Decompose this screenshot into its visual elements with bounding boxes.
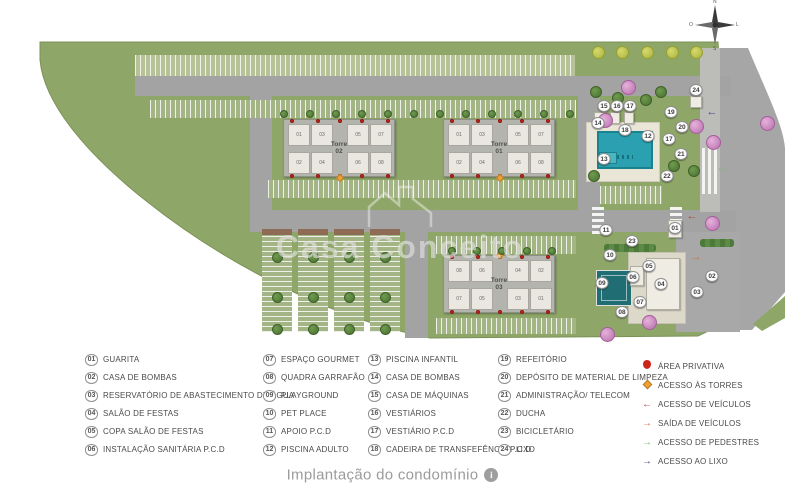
legend-item: 16VESTIÁRIOS xyxy=(368,407,436,420)
tower-unit: 05 xyxy=(471,288,493,310)
legend-label: SALÃO DE FESTAS xyxy=(103,409,179,418)
legend-label: QUADRA GARRAFÃO xyxy=(281,373,365,382)
map-marker: 24 xyxy=(690,84,703,96)
legend-label: DUCHA xyxy=(516,409,545,418)
private-area-dot xyxy=(520,255,524,259)
legend-item: 17VESTIÁRIO P.C.D xyxy=(368,425,454,438)
green-tree-icon xyxy=(308,324,319,335)
pink-flowering-tree-icon xyxy=(689,119,704,134)
legend-label: VESTIÁRIOS xyxy=(386,409,436,418)
tower-unit: 02 xyxy=(288,152,310,174)
legend-symbol-label: ÁREA PRIVATIVA xyxy=(658,362,724,371)
private-area-dot xyxy=(546,310,550,314)
legend-symbol-label: ACESSO DE PEDESTRES xyxy=(658,438,759,447)
tower-building: 0103050702040608Torre 02 xyxy=(283,119,395,177)
legend-label: INSTALAÇÃO SANITÁRIA P.C.D xyxy=(103,445,225,454)
green-tree-icon xyxy=(308,252,319,263)
legend-item: 04SALÃO DE FESTAS xyxy=(85,407,179,420)
legend-label: ESPAÇO GOURMET xyxy=(281,355,360,364)
private-area-dot xyxy=(498,119,502,123)
private-area-dot xyxy=(546,174,550,178)
compass-rose: N S L O xyxy=(692,2,738,48)
map-marker: 18 xyxy=(619,124,632,136)
green-tree-icon xyxy=(488,110,496,118)
vehicle-exit-icon: → xyxy=(640,418,654,430)
unit-number: 06 xyxy=(348,153,368,173)
legend-number-badge: 17 xyxy=(368,426,381,438)
legend-number-badge: 10 xyxy=(263,408,276,420)
unit-number: 02 xyxy=(289,153,309,173)
legend-number-badge: 08 xyxy=(263,372,276,384)
map-marker: 17 xyxy=(663,133,676,145)
legend-symbol-item: →ACESSO DE PEDESTRES xyxy=(640,436,759,449)
legend-item: 08QUADRA GARRAFÃO xyxy=(263,371,365,384)
tower-unit: 08 xyxy=(530,152,552,174)
tower-unit: 02 xyxy=(448,152,470,174)
map-marker: 10 xyxy=(604,249,617,261)
hedge-row xyxy=(700,239,734,247)
pink-flowering-tree-icon xyxy=(760,116,775,131)
green-tree-icon xyxy=(523,247,531,255)
private-area-dot xyxy=(476,255,480,259)
info-icon[interactable]: i xyxy=(484,468,498,482)
private-area-dot xyxy=(520,174,524,178)
tower-access-icon xyxy=(640,380,654,392)
legend-label: REFEITÓRIO xyxy=(516,355,567,364)
legend-number-badge: 24 xyxy=(498,444,511,456)
map-marker: 14 xyxy=(592,117,605,129)
green-tree-icon xyxy=(436,110,444,118)
legend-symbol-label: ACESSO DE VEÍCULOS xyxy=(658,400,751,409)
site-plan-page: 0103050702040608Torre 020103050702040608… xyxy=(0,0,785,491)
tower-unit: 06 xyxy=(507,152,529,174)
legend-item: 14CASA DE BOMBAS xyxy=(368,371,460,384)
legend-item: 23BICICLETÁRIO xyxy=(498,425,574,438)
map-marker: 04 xyxy=(655,278,668,290)
legend-number-badge: 16 xyxy=(368,408,381,420)
map-marker: 20 xyxy=(676,121,689,133)
legend-symbol-label: ACESSO AO LIXO xyxy=(658,457,728,466)
legend-number-badge: 19 xyxy=(498,354,511,366)
parking-row xyxy=(436,318,576,334)
parking-row xyxy=(262,234,292,332)
map-marker: 07 xyxy=(634,296,647,308)
private-area-dot xyxy=(338,119,342,123)
green-tree-icon xyxy=(344,324,355,335)
legend-number-badge: 13 xyxy=(368,354,381,366)
legend-number-badge: 14 xyxy=(368,372,381,384)
legend-item: 02CASA DE BOMBAS xyxy=(85,371,177,384)
map-marker: 22 xyxy=(661,170,674,182)
vehicle-access-icon: ← xyxy=(640,399,654,411)
tower-name-label: Torre 03 xyxy=(444,277,554,291)
map-marker: 11 xyxy=(600,224,613,236)
legend-label: COPA SALÃO DE FESTAS xyxy=(103,427,204,436)
tower-unit: 06 xyxy=(347,152,369,174)
private-area-dot xyxy=(546,255,550,259)
green-shrub-icon xyxy=(588,170,600,182)
unit-number: 08 xyxy=(371,153,391,173)
legend-label: CASA DE BOMBAS xyxy=(103,373,177,382)
legend-number-badge: 05 xyxy=(85,426,98,438)
legend-number-badge: 01 xyxy=(85,354,98,366)
carport-roof xyxy=(262,229,292,235)
unit-number: 07 xyxy=(449,289,469,309)
legend-number-badge: 23 xyxy=(498,426,511,438)
parking-row xyxy=(268,180,576,198)
road-center-vertical xyxy=(405,232,428,338)
private-area-dot xyxy=(386,174,390,178)
private-area-dot xyxy=(520,310,524,314)
green-tree-icon xyxy=(272,252,283,263)
green-tree-icon xyxy=(473,247,481,255)
private-area-dot xyxy=(520,119,524,123)
green-tree-icon xyxy=(384,110,392,118)
legend-item: 05COPA SALÃO DE FESTAS xyxy=(85,425,204,438)
pink-flowering-tree-icon xyxy=(705,216,720,231)
legend: 01GUARITA02CASA DE BOMBAS03RESERVATÓRIO … xyxy=(0,348,785,470)
parking-row xyxy=(334,234,364,332)
legend-label: PISCINA INFANTIL xyxy=(386,355,458,364)
green-shrub-icon xyxy=(640,94,652,106)
caption-bar: Implantação do condomínioi xyxy=(0,466,785,484)
green-tree-icon xyxy=(514,110,522,118)
map-marker: 09 xyxy=(596,277,609,289)
legend-item: 13PISCINA INFANTIL xyxy=(368,353,458,366)
legend-label: CASA DE BOMBAS xyxy=(386,373,460,382)
private-area-icon xyxy=(640,360,654,373)
unit-number: 02 xyxy=(449,153,469,173)
tower-unit: 08 xyxy=(370,152,392,174)
map-marker: 05 xyxy=(643,260,656,272)
unit-number: 06 xyxy=(508,153,528,173)
pink-flowering-tree-icon xyxy=(600,327,615,342)
private-area-dot xyxy=(476,119,480,123)
legend-label: LIXO xyxy=(516,445,535,454)
legend-item: 15CASA DE MÁQUINAS xyxy=(368,389,469,402)
legend-item: 21ADMINISTRAÇÃO/ TELECOM xyxy=(498,389,630,402)
tower-name-label: Torre 01 xyxy=(444,141,554,155)
private-area-dot xyxy=(546,119,550,123)
private-area-dot xyxy=(450,255,454,259)
private-area-dot xyxy=(450,119,454,123)
legend-number-badge: 06 xyxy=(85,444,98,456)
green-tree-icon xyxy=(540,110,548,118)
yellow-tree-icon xyxy=(616,46,629,59)
private-area-dot xyxy=(450,174,454,178)
legend-item: 07ESPAÇO GOURMET xyxy=(263,353,360,366)
green-tree-icon xyxy=(380,292,391,303)
tower-unit: 04 xyxy=(471,152,493,174)
yellow-tree-icon xyxy=(641,46,654,59)
unit-number: 08 xyxy=(531,153,551,173)
green-tree-icon xyxy=(280,110,288,118)
changing-rooms-building xyxy=(624,112,634,124)
legend-label: APOIO P.C.D xyxy=(281,427,331,436)
trash-building xyxy=(690,96,702,108)
legend-item: 11APOIO P.C.D xyxy=(263,425,331,438)
map-marker: 17 xyxy=(624,100,637,112)
legend-number-badge: 18 xyxy=(368,444,381,456)
private-area-dot xyxy=(450,310,454,314)
green-tree-icon xyxy=(306,110,314,118)
parking-row xyxy=(370,234,400,332)
compass-south-label: S xyxy=(713,46,716,52)
legend-number-badge: 04 xyxy=(85,408,98,420)
unit-number: 04 xyxy=(312,153,332,173)
private-area-dot xyxy=(316,174,320,178)
parking-row xyxy=(298,234,328,332)
green-tree-icon xyxy=(380,252,391,263)
green-tree-icon xyxy=(332,110,340,118)
trash-access-arrow: ← xyxy=(707,107,718,117)
tower-unit: 07 xyxy=(448,288,470,310)
green-tree-icon xyxy=(548,247,556,255)
green-shrub-icon xyxy=(688,165,700,177)
compass-east-label: L xyxy=(736,22,739,28)
carport-roof xyxy=(370,229,400,235)
legend-item: 24LIXO xyxy=(498,443,535,456)
private-area-dot xyxy=(360,174,364,178)
carport-roof xyxy=(334,229,364,235)
map-marker: 13 xyxy=(598,153,611,165)
condominium-master-plan[interactable]: 0103050702040608Torre 020103050702040608… xyxy=(0,0,785,345)
legend-number-badge: 02 xyxy=(85,372,98,384)
green-tree-icon xyxy=(358,110,366,118)
legend-symbol-item: ACESSO ÀS TORRES xyxy=(640,379,743,392)
legend-number-badge: 07 xyxy=(263,354,276,366)
caption-title: Implantação do condomínio xyxy=(287,466,479,483)
parking-row xyxy=(600,186,662,204)
legend-symbol-label: SAÍDA DE VEÍCULOS xyxy=(658,419,741,428)
pink-flowering-tree-icon xyxy=(621,80,636,95)
map-marker: 19 xyxy=(665,106,678,118)
map-marker: 03 xyxy=(691,286,704,298)
tower-unit: 01 xyxy=(530,288,552,310)
parking-row xyxy=(135,55,575,76)
map-marker: 08 xyxy=(616,306,629,318)
map-marker: 21 xyxy=(675,148,688,160)
tower-building: 0806040207050301Torre 03 xyxy=(443,255,555,313)
legend-item: 12PISCINA ADULTO xyxy=(263,443,349,456)
legend-number-badge: 20 xyxy=(498,372,511,384)
unit-number: 01 xyxy=(531,289,551,309)
pink-flowering-tree-icon xyxy=(642,315,657,330)
legend-item: 10PET PLACE xyxy=(263,407,327,420)
legend-item: 01GUARITA xyxy=(85,353,139,366)
unit-number: 05 xyxy=(472,289,492,309)
green-tree-icon xyxy=(448,247,456,255)
legend-item: 06INSTALAÇÃO SANITÁRIA P.C.D xyxy=(85,443,225,456)
legend-item: 19REFEITÓRIO xyxy=(498,353,567,366)
map-marker: 02 xyxy=(706,270,719,282)
green-tree-icon xyxy=(308,292,319,303)
map-marker: 23 xyxy=(626,235,639,247)
green-tree-icon xyxy=(498,247,506,255)
map-marker: 15 xyxy=(598,100,611,112)
private-area-dot xyxy=(386,119,390,123)
legend-symbol-label: ACESSO ÀS TORRES xyxy=(658,381,743,390)
private-area-dot xyxy=(360,119,364,123)
tower-unit: 03 xyxy=(507,288,529,310)
compass-west-label: O xyxy=(689,22,693,28)
green-tree-icon xyxy=(344,252,355,263)
map-marker: 01 xyxy=(669,222,682,234)
private-area-dot xyxy=(290,174,294,178)
legend-number-badge: 22 xyxy=(498,408,511,420)
green-tree-icon xyxy=(272,292,283,303)
legend-symbol-item: ÁREA PRIVATIVA xyxy=(640,360,724,373)
private-area-dot xyxy=(476,310,480,314)
green-shrub-icon xyxy=(655,86,667,98)
legend-label: PET PLACE xyxy=(281,409,327,418)
legend-label: CASA DE MÁQUINAS xyxy=(386,391,469,400)
legend-label: PISCINA ADULTO xyxy=(281,445,349,454)
private-area-dot xyxy=(290,119,294,123)
map-marker: 12 xyxy=(642,130,655,142)
green-tree-icon xyxy=(344,292,355,303)
tower-building: 0103050702040608Torre 01 xyxy=(443,119,555,177)
vehicle-access-arrow: ← xyxy=(687,211,698,221)
carport-roof xyxy=(298,229,328,235)
legend-label: PLAYGROUND xyxy=(281,391,338,400)
legend-label: VESTIÁRIO P.C.D xyxy=(386,427,454,436)
compass-icon xyxy=(692,2,738,48)
legend-symbol-item: →SAÍDA DE VEÍCULOS xyxy=(640,417,741,430)
green-tree-icon xyxy=(566,110,574,118)
legend-number-badge: 12 xyxy=(263,444,276,456)
legend-number-badge: 11 xyxy=(263,426,276,438)
yellow-tree-icon xyxy=(592,46,605,59)
pedestrian-access-arrow: ← xyxy=(717,163,728,173)
tower-name-label: Torre 02 xyxy=(284,141,394,155)
yellow-tree-icon xyxy=(666,46,679,59)
legend-item: 22DUCHA xyxy=(498,407,545,420)
legend-number-badge: 03 xyxy=(85,390,98,402)
legend-number-badge: 09 xyxy=(263,390,276,402)
legend-item: 09PLAYGROUND xyxy=(263,389,338,402)
unit-number: 04 xyxy=(472,153,492,173)
green-shrub-icon xyxy=(590,86,602,98)
green-tree-icon xyxy=(462,110,470,118)
green-tree-icon xyxy=(410,110,418,118)
private-area-dot xyxy=(476,174,480,178)
private-area-dot xyxy=(316,119,320,123)
road-top xyxy=(135,76,731,96)
pink-flowering-tree-icon xyxy=(706,135,721,150)
pedestrian-access-icon: → xyxy=(640,437,654,449)
legend-label: GUARITA xyxy=(103,355,139,364)
green-tree-icon xyxy=(380,324,391,335)
legend-number-badge: 15 xyxy=(368,390,381,402)
legend-number-badge: 21 xyxy=(498,390,511,402)
tower-unit: 04 xyxy=(311,152,333,174)
map-marker: 06 xyxy=(627,271,640,283)
unit-number: 03 xyxy=(508,289,528,309)
compass-north-label: N xyxy=(713,0,717,5)
green-tree-icon xyxy=(272,324,283,335)
private-area-dot xyxy=(498,310,502,314)
legend-label: BICICLETÁRIO xyxy=(516,427,574,436)
legend-label: ADMINISTRAÇÃO/ TELECOM xyxy=(516,391,630,400)
map-marker: 16 xyxy=(611,100,624,112)
vehicle-exit-arrow: → xyxy=(691,252,702,262)
legend-symbol-item: ←ACESSO DE VEÍCULOS xyxy=(640,398,751,411)
